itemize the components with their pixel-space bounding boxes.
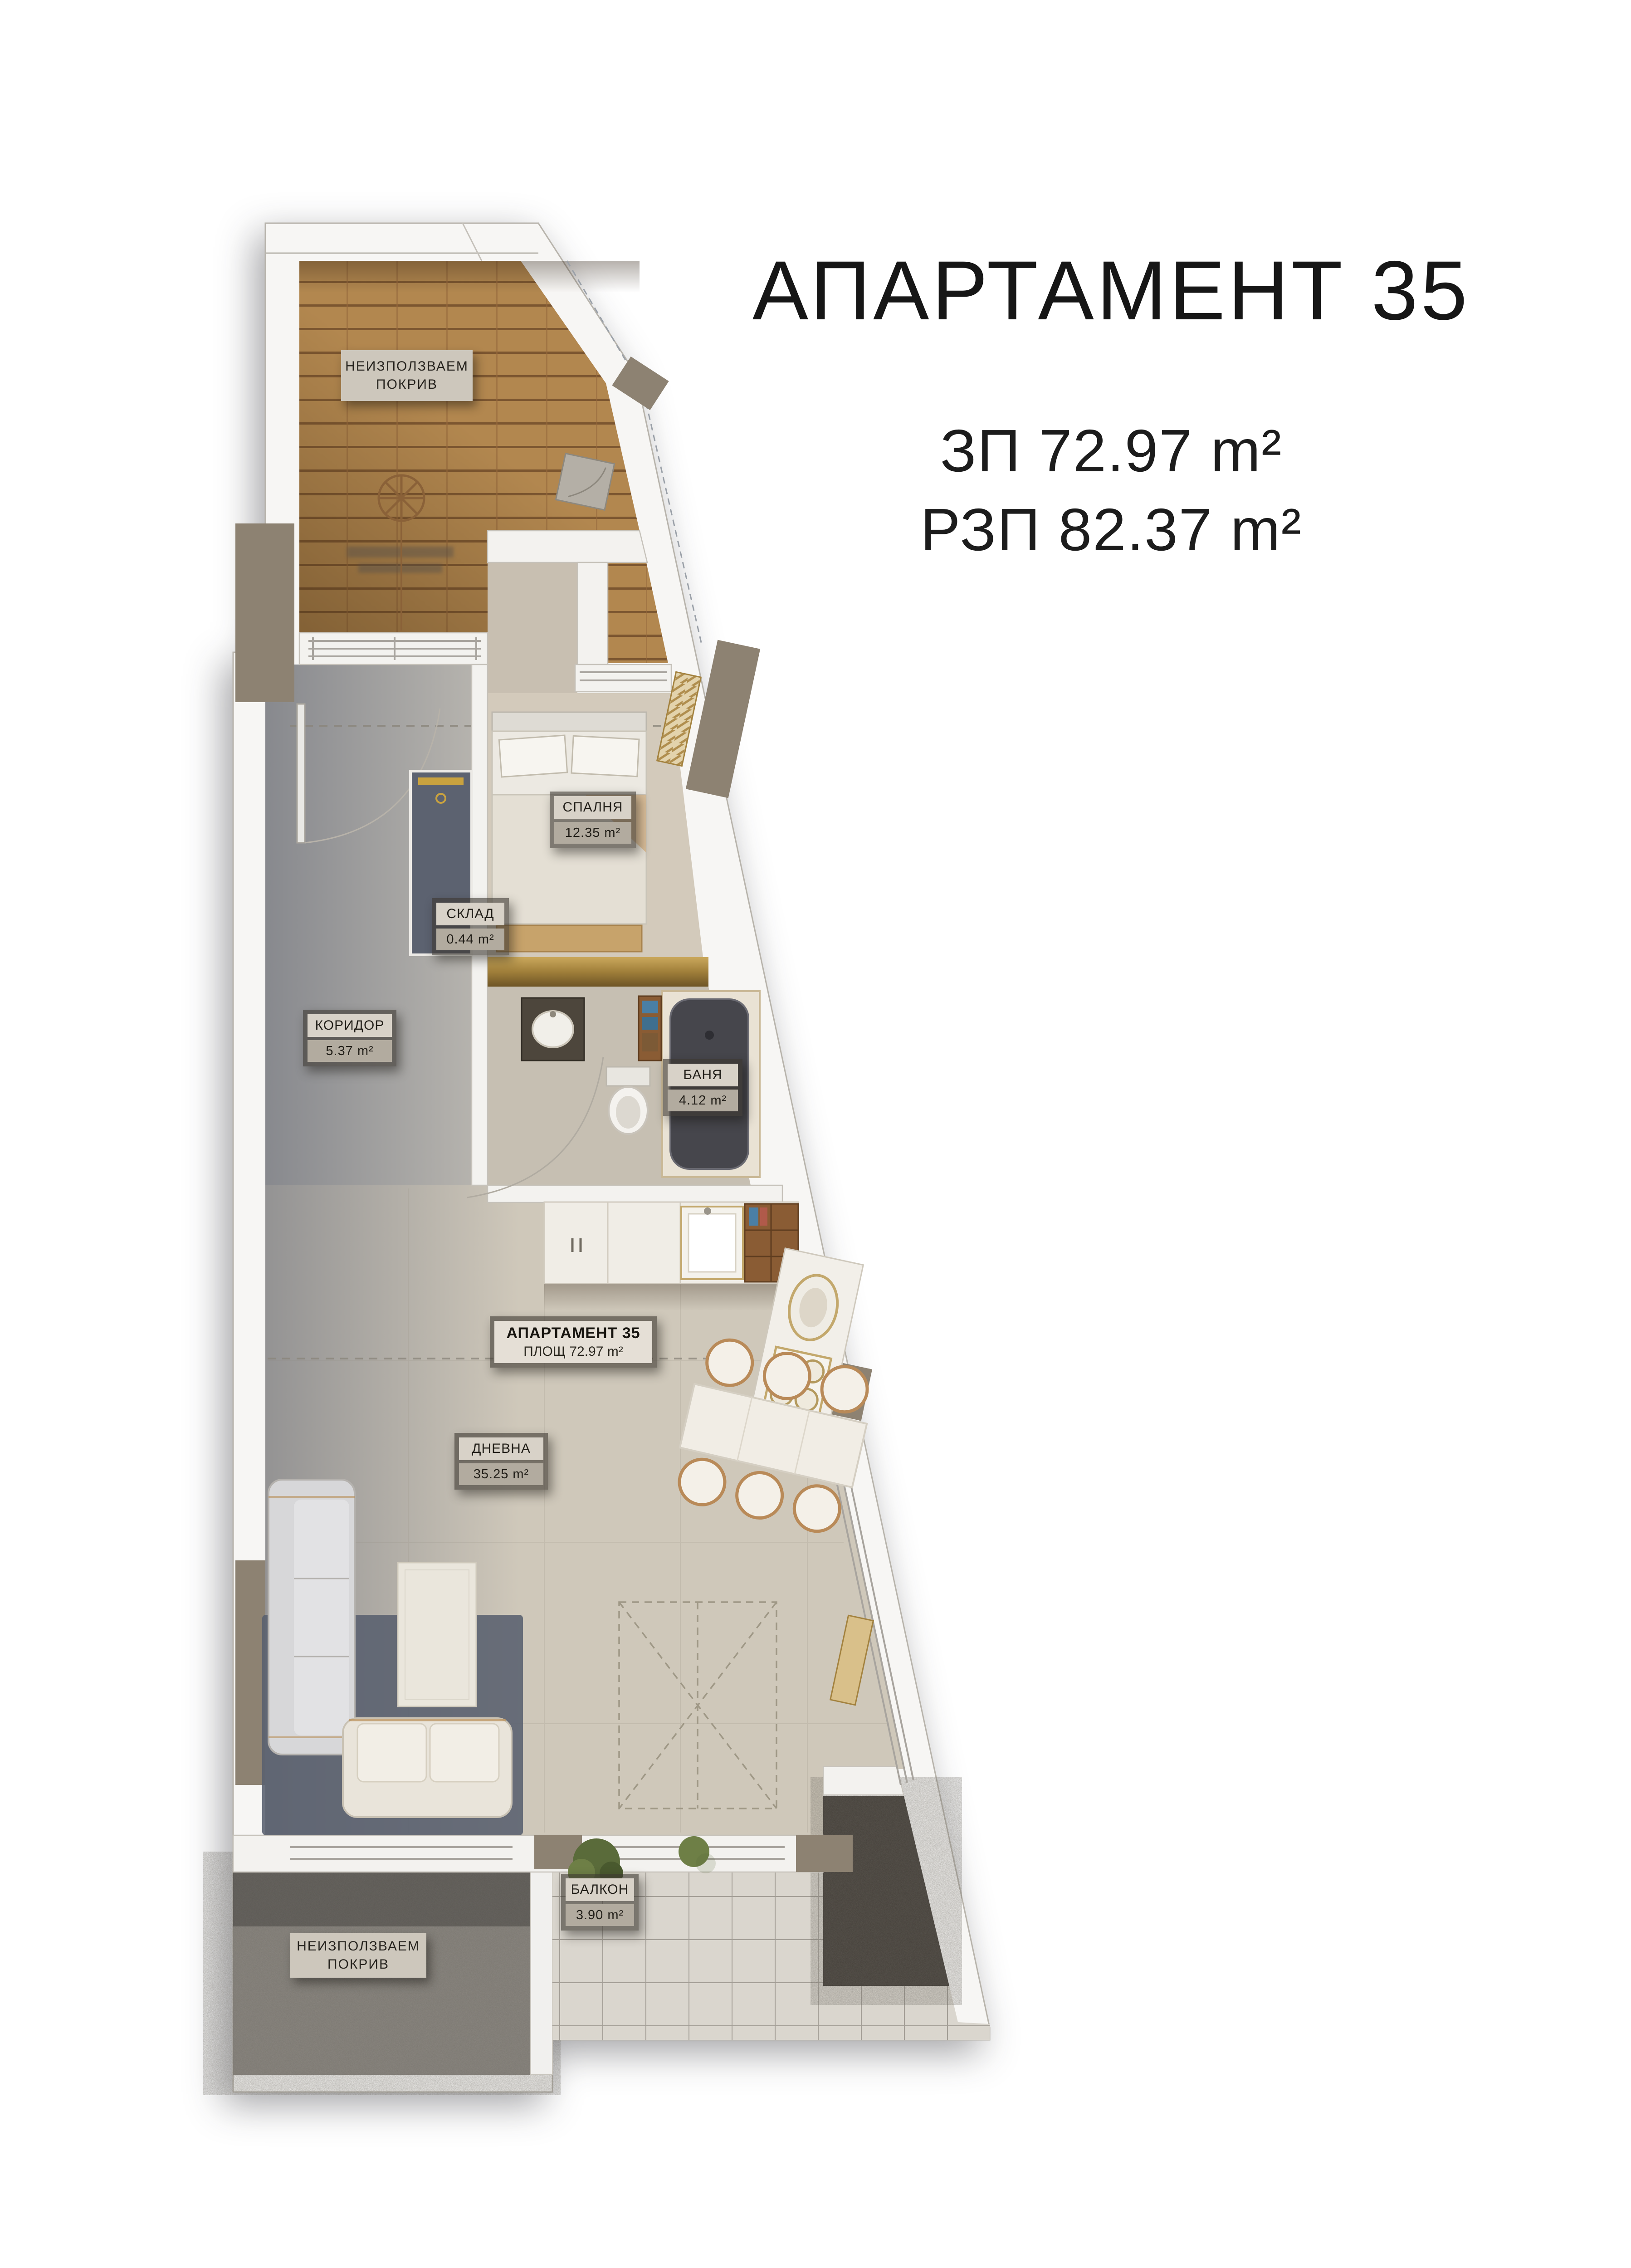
balcony-divider-wall xyxy=(531,1872,552,2075)
label-corridor-name: КОРИДОР xyxy=(308,1014,392,1037)
coffee-table xyxy=(398,1563,476,1706)
page-title: АПАРТАМЕНТ 35 xyxy=(658,243,1565,339)
label-bedroom-area: 12.35 m² xyxy=(554,822,631,844)
label-storage-area: 0.44 m² xyxy=(436,929,504,950)
label-bedroom-name: СПАЛНЯ xyxy=(554,796,631,819)
bathroom-sink xyxy=(522,998,584,1061)
label-living: ДНЕВНА 35.25 m² xyxy=(454,1433,548,1490)
counter-shadow xyxy=(544,1284,798,1311)
label-bedroom: СПАЛНЯ 12.35 m² xyxy=(550,792,636,848)
label-apartment: АПАРТАМЕНТ 35 ПЛОЩ 72.97 m² xyxy=(490,1316,657,1368)
label-storage-name: СКЛАД xyxy=(436,903,504,925)
label-living-area: 35.25 m² xyxy=(459,1463,543,1485)
label-balcony-name: БАЛКОН xyxy=(566,1878,634,1901)
label-balcony-area: 3.90 m² xyxy=(566,1904,634,1926)
label-roof-top-line1: НЕИЗПОЛЗВАЕМ xyxy=(345,357,469,376)
label-living-name: ДНЕВНА xyxy=(459,1437,543,1460)
wall-band-gravel-top xyxy=(823,1767,903,1795)
label-bathroom: БАНЯ 4.12 m² xyxy=(663,1059,742,1116)
label-apartment-area: ПЛОЩ 72.97 m² xyxy=(497,1344,649,1359)
sofa-loveseat xyxy=(343,1718,512,1817)
label-storage: СКЛАД 0.44 m² xyxy=(432,898,509,955)
floorplan-page: АПАРТАМЕНТ 35 ЗП 72.97 m² РЗП 82.37 m² Н… xyxy=(0,0,1631,2268)
floorplan-drawing xyxy=(0,0,1631,2268)
toilet xyxy=(606,1067,650,1134)
label-bathroom-area: 4.12 m² xyxy=(668,1090,738,1111)
label-roof-bottom-line2: ПОКРИВ xyxy=(327,1955,389,1974)
roof-deck-wood xyxy=(299,261,668,663)
kitchen-counter xyxy=(544,1202,798,1284)
label-roof-top-line2: ПОКРИВ xyxy=(376,376,438,394)
bathroom-shelf xyxy=(639,996,661,1061)
wardrobe-wall-strip xyxy=(488,957,708,987)
label-corridor: КОРИДОР 5.37 m² xyxy=(303,1010,396,1066)
label-balcony: БАЛКОН 3.90 m² xyxy=(561,1874,639,1931)
label-roof-top: НЕИЗПОЛЗВАЕМ ПОКРИВ xyxy=(341,350,473,401)
sofa-large xyxy=(269,1480,355,1755)
label-corridor-area: 5.37 m² xyxy=(308,1040,392,1062)
label-apartment-name: АПАРТАМЕНТ 35 xyxy=(497,1325,649,1342)
label-roof-bottom: НЕИЗПОЛЗВАЕМ ПОКРИВ xyxy=(290,1933,426,1978)
built-area-line: ЗП 72.97 m² xyxy=(658,416,1565,485)
deck-ac-unit xyxy=(556,454,614,510)
label-bathroom-name: БАНЯ xyxy=(668,1064,738,1086)
gross-area-line: РЗП 82.37 m² xyxy=(658,495,1565,564)
label-roof-bottom-line1: НЕИЗПОЛЗВАЕМ xyxy=(297,1937,420,1956)
